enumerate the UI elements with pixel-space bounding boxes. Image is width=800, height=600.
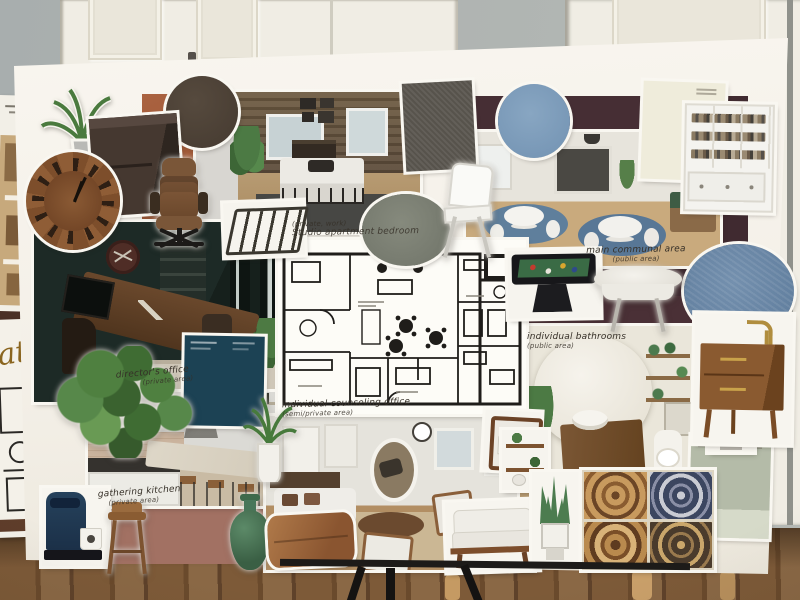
stool-leg <box>107 520 117 574</box>
vase-body <box>230 510 270 570</box>
folding-table-skirt <box>602 284 674 300</box>
bedroom-frames <box>300 98 340 124</box>
tile <box>650 522 713 569</box>
folding-table-leg <box>611 298 622 332</box>
fabric-texture <box>402 80 477 172</box>
stool-rung <box>112 550 142 553</box>
floor-plan <box>278 240 526 414</box>
shelf-plant <box>528 456 542 468</box>
bed-pillow <box>308 160 334 172</box>
bathroom-shelf-plants <box>648 342 688 402</box>
drawer-knob <box>699 184 703 188</box>
office-wall-clock <box>106 240 140 274</box>
chair-headrest <box>162 158 196 176</box>
slate-blue-circle-swatch <box>498 84 570 158</box>
vanity-leg <box>731 410 735 434</box>
snake-plant-icon <box>532 472 578 564</box>
vanity-pull <box>720 388 746 391</box>
bedroom-window <box>346 108 388 156</box>
toilet-lid <box>656 448 680 468</box>
keurig-base <box>44 550 102 560</box>
shelf-plant <box>510 432 524 444</box>
pool-table-pedestal <box>532 284 572 313</box>
door-frame-shadow <box>787 0 793 525</box>
communal-chair <box>546 220 560 238</box>
counseling-window <box>434 428 474 470</box>
stool-seat <box>108 512 146 520</box>
easel-leg-center <box>386 568 395 600</box>
bookshelf-frame-lines <box>686 105 773 168</box>
ivy-plant-cutout <box>50 346 218 458</box>
paint-card-text-lines <box>232 342 258 354</box>
office-monitor <box>61 274 115 320</box>
snake-plant-planter-cutout <box>532 472 578 564</box>
table-leg <box>445 575 460 600</box>
label-communal: main communal area (public area) <box>566 244 706 265</box>
communal-table <box>598 216 642 238</box>
tile <box>650 472 713 519</box>
gray-fabric-swatch <box>402 80 477 172</box>
green-vase-cutout <box>228 494 272 574</box>
table-leg <box>632 570 652 600</box>
wall-clock-cutout <box>26 152 120 250</box>
folding-chair-leg <box>477 216 491 258</box>
sofa-pillow <box>304 493 320 505</box>
pillow-seam <box>274 535 348 543</box>
vanity-leg <box>704 409 712 437</box>
chair-armrest <box>150 192 160 214</box>
shelf-planter <box>512 474 526 486</box>
ivy-foliage <box>50 346 218 458</box>
label-bedroom: (private, work) Studio apartment bedroom <box>292 218 442 239</box>
drawer-knob <box>749 185 753 189</box>
folding-table-leg <box>655 298 666 332</box>
counseling-art-frame <box>324 424 358 468</box>
stool-leg <box>137 520 147 574</box>
vessel-sink <box>572 410 608 430</box>
tile <box>584 472 647 519</box>
bar-stool-cutout <box>100 502 154 578</box>
vanity-pull <box>720 358 746 361</box>
vanity-drawer-line <box>704 373 764 376</box>
communal-plant <box>618 160 636 192</box>
wood-vanity-cutout <box>693 313 793 445</box>
chair-armrest <box>198 192 208 214</box>
floor-plan-drawing <box>278 240 526 414</box>
label-bathrooms-note: (public area) <box>527 342 657 350</box>
bedroom-plant <box>230 126 264 178</box>
door-panel <box>196 0 258 64</box>
coffee-mug <box>80 528 102 550</box>
drawer-knob <box>725 185 729 189</box>
communal-cabinet <box>554 146 612 194</box>
bedroom-bed <box>280 158 364 204</box>
photo-root: ation <box>0 0 800 600</box>
egg-chair <box>370 438 418 502</box>
toilet <box>654 430 682 474</box>
office-desk-lamp <box>138 300 164 320</box>
vanity-faucet <box>747 320 773 346</box>
mug-logo <box>87 535 95 543</box>
bookshelf-drawers <box>687 171 766 202</box>
vanity-cabinet <box>699 343 784 410</box>
paint-card-text-lines <box>693 86 719 97</box>
label-bathrooms: individual bathrooms (public area) <box>527 332 657 350</box>
folding-chair-back <box>448 162 494 210</box>
table-leg <box>720 572 735 600</box>
sofa-pillow <box>282 494 298 506</box>
vanity-leg <box>770 410 777 438</box>
chair-back <box>160 176 198 218</box>
door-panel <box>88 0 162 60</box>
counseling-wall-clock <box>412 422 432 442</box>
keurig-handle <box>50 498 80 508</box>
vanity-faucet-stem <box>765 330 769 344</box>
communal-table <box>504 206 544 226</box>
tile <box>584 522 647 569</box>
bookshelf-cutout <box>683 103 775 213</box>
label-bathrooms-title: individual bathrooms <box>527 332 657 342</box>
folding-chair-cutout <box>436 164 502 260</box>
office-chair-cutout <box>144 158 216 258</box>
patterned-tiles-swatch <box>582 470 714 570</box>
egg-chair-cushion <box>378 457 403 478</box>
shelf-board <box>506 444 544 448</box>
communal-ceiling-light <box>584 134 600 144</box>
folding-table-cutout <box>592 264 686 336</box>
